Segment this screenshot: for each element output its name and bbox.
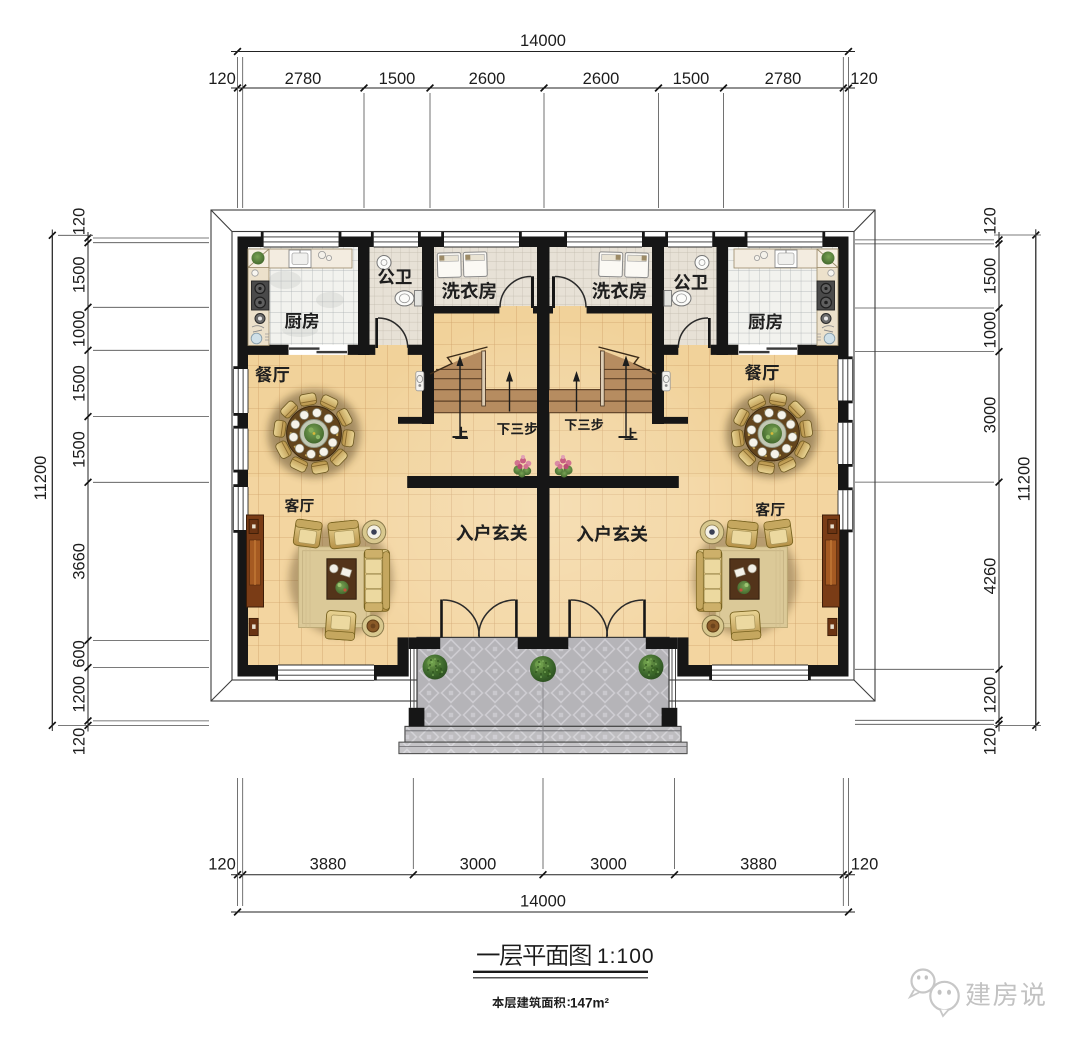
svg-text:14000: 14000 — [520, 893, 566, 911]
svg-text:3660: 3660 — [71, 543, 89, 580]
svg-text:120: 120 — [208, 856, 236, 874]
svg-text:2780: 2780 — [765, 70, 802, 88]
svg-text:3880: 3880 — [310, 856, 347, 874]
svg-text:1000: 1000 — [982, 312, 1000, 349]
svg-text:1:100: 1:100 — [597, 945, 655, 968]
svg-text:4260: 4260 — [982, 558, 1000, 595]
svg-text:1200: 1200 — [71, 676, 89, 713]
svg-text:2600: 2600 — [583, 70, 620, 88]
svg-text:147m²: 147m² — [570, 996, 610, 1011]
svg-text:14000: 14000 — [520, 32, 566, 50]
svg-text:120: 120 — [851, 856, 879, 874]
svg-text:120: 120 — [71, 728, 89, 756]
svg-text:1500: 1500 — [673, 70, 710, 88]
svg-text:120: 120 — [850, 70, 878, 88]
svg-text:1500: 1500 — [71, 256, 89, 293]
svg-text:11200: 11200 — [32, 456, 50, 501]
svg-text:3880: 3880 — [740, 856, 777, 874]
svg-text:120: 120 — [208, 70, 236, 88]
svg-text:1000: 1000 — [71, 310, 89, 347]
svg-text:120: 120 — [982, 728, 1000, 756]
svg-text:120: 120 — [982, 207, 1000, 235]
svg-text:120: 120 — [71, 208, 89, 236]
svg-text:3000: 3000 — [982, 397, 1000, 434]
svg-text:1500: 1500 — [982, 258, 1000, 295]
svg-text:600: 600 — [71, 640, 89, 668]
svg-text:1500: 1500 — [71, 365, 89, 402]
svg-text:11200: 11200 — [1016, 457, 1034, 502]
svg-text:2600: 2600 — [469, 70, 506, 88]
svg-text:3000: 3000 — [460, 856, 497, 874]
svg-text:3000: 3000 — [590, 856, 627, 874]
svg-text:1500: 1500 — [71, 431, 89, 468]
svg-text:1200: 1200 — [982, 677, 1000, 714]
svg-text:1500: 1500 — [379, 70, 416, 88]
svg-text:2780: 2780 — [285, 70, 322, 88]
